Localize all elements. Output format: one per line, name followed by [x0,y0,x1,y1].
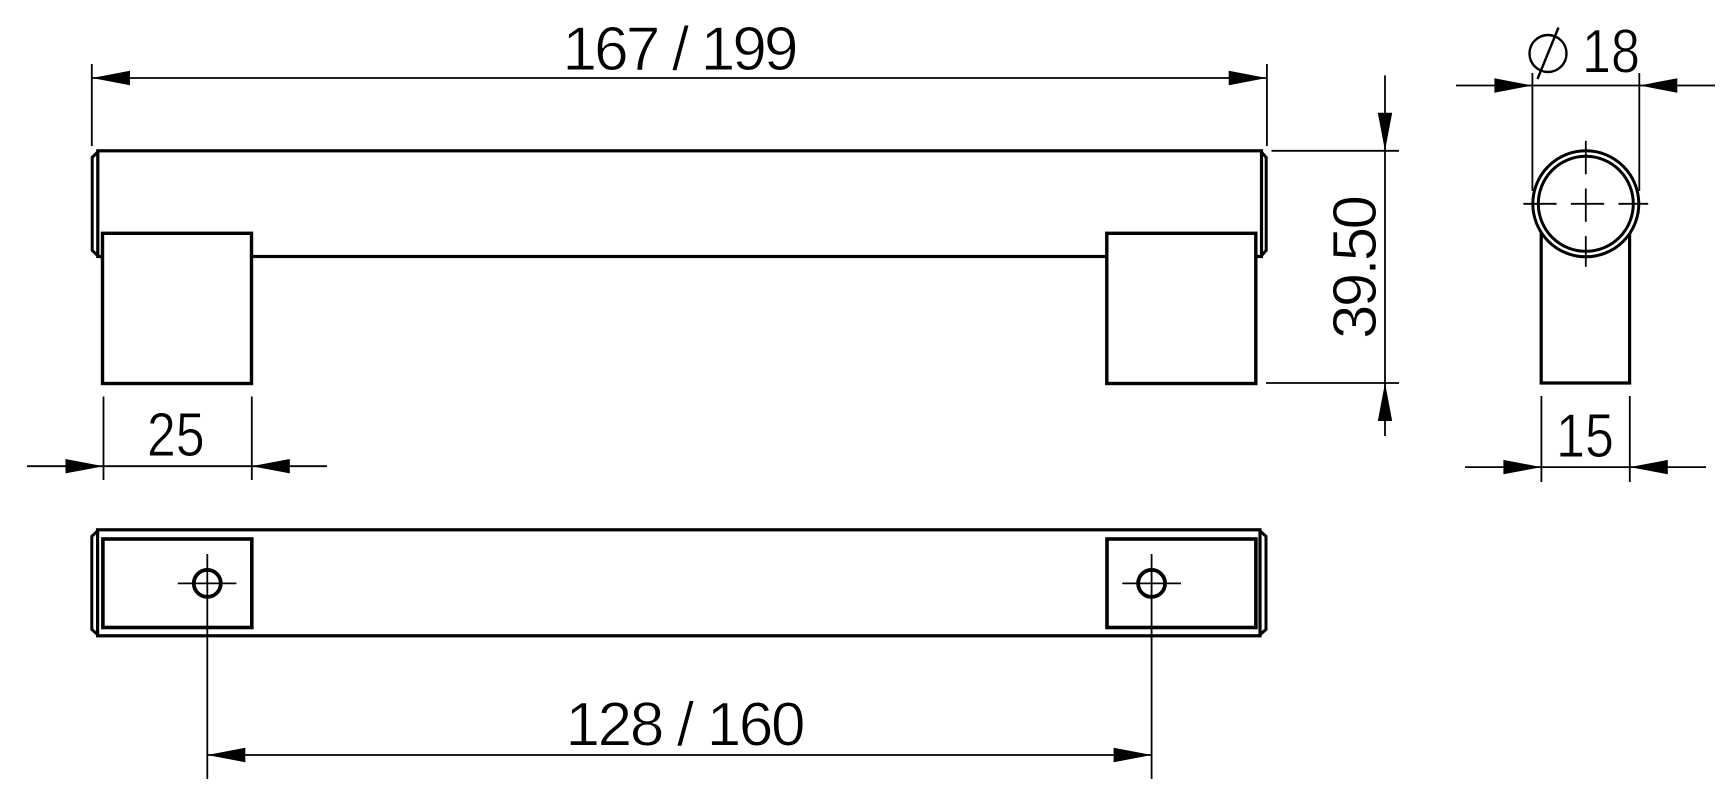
svg-text:39.50: 39.50 [1321,195,1390,339]
svg-text:167 / 199: 167 / 199 [563,15,799,84]
svg-text:25: 25 [147,401,205,470]
svg-text:128 / 160: 128 / 160 [566,691,806,760]
svg-text:18: 18 [1582,17,1640,86]
svg-text:15: 15 [1556,402,1614,471]
